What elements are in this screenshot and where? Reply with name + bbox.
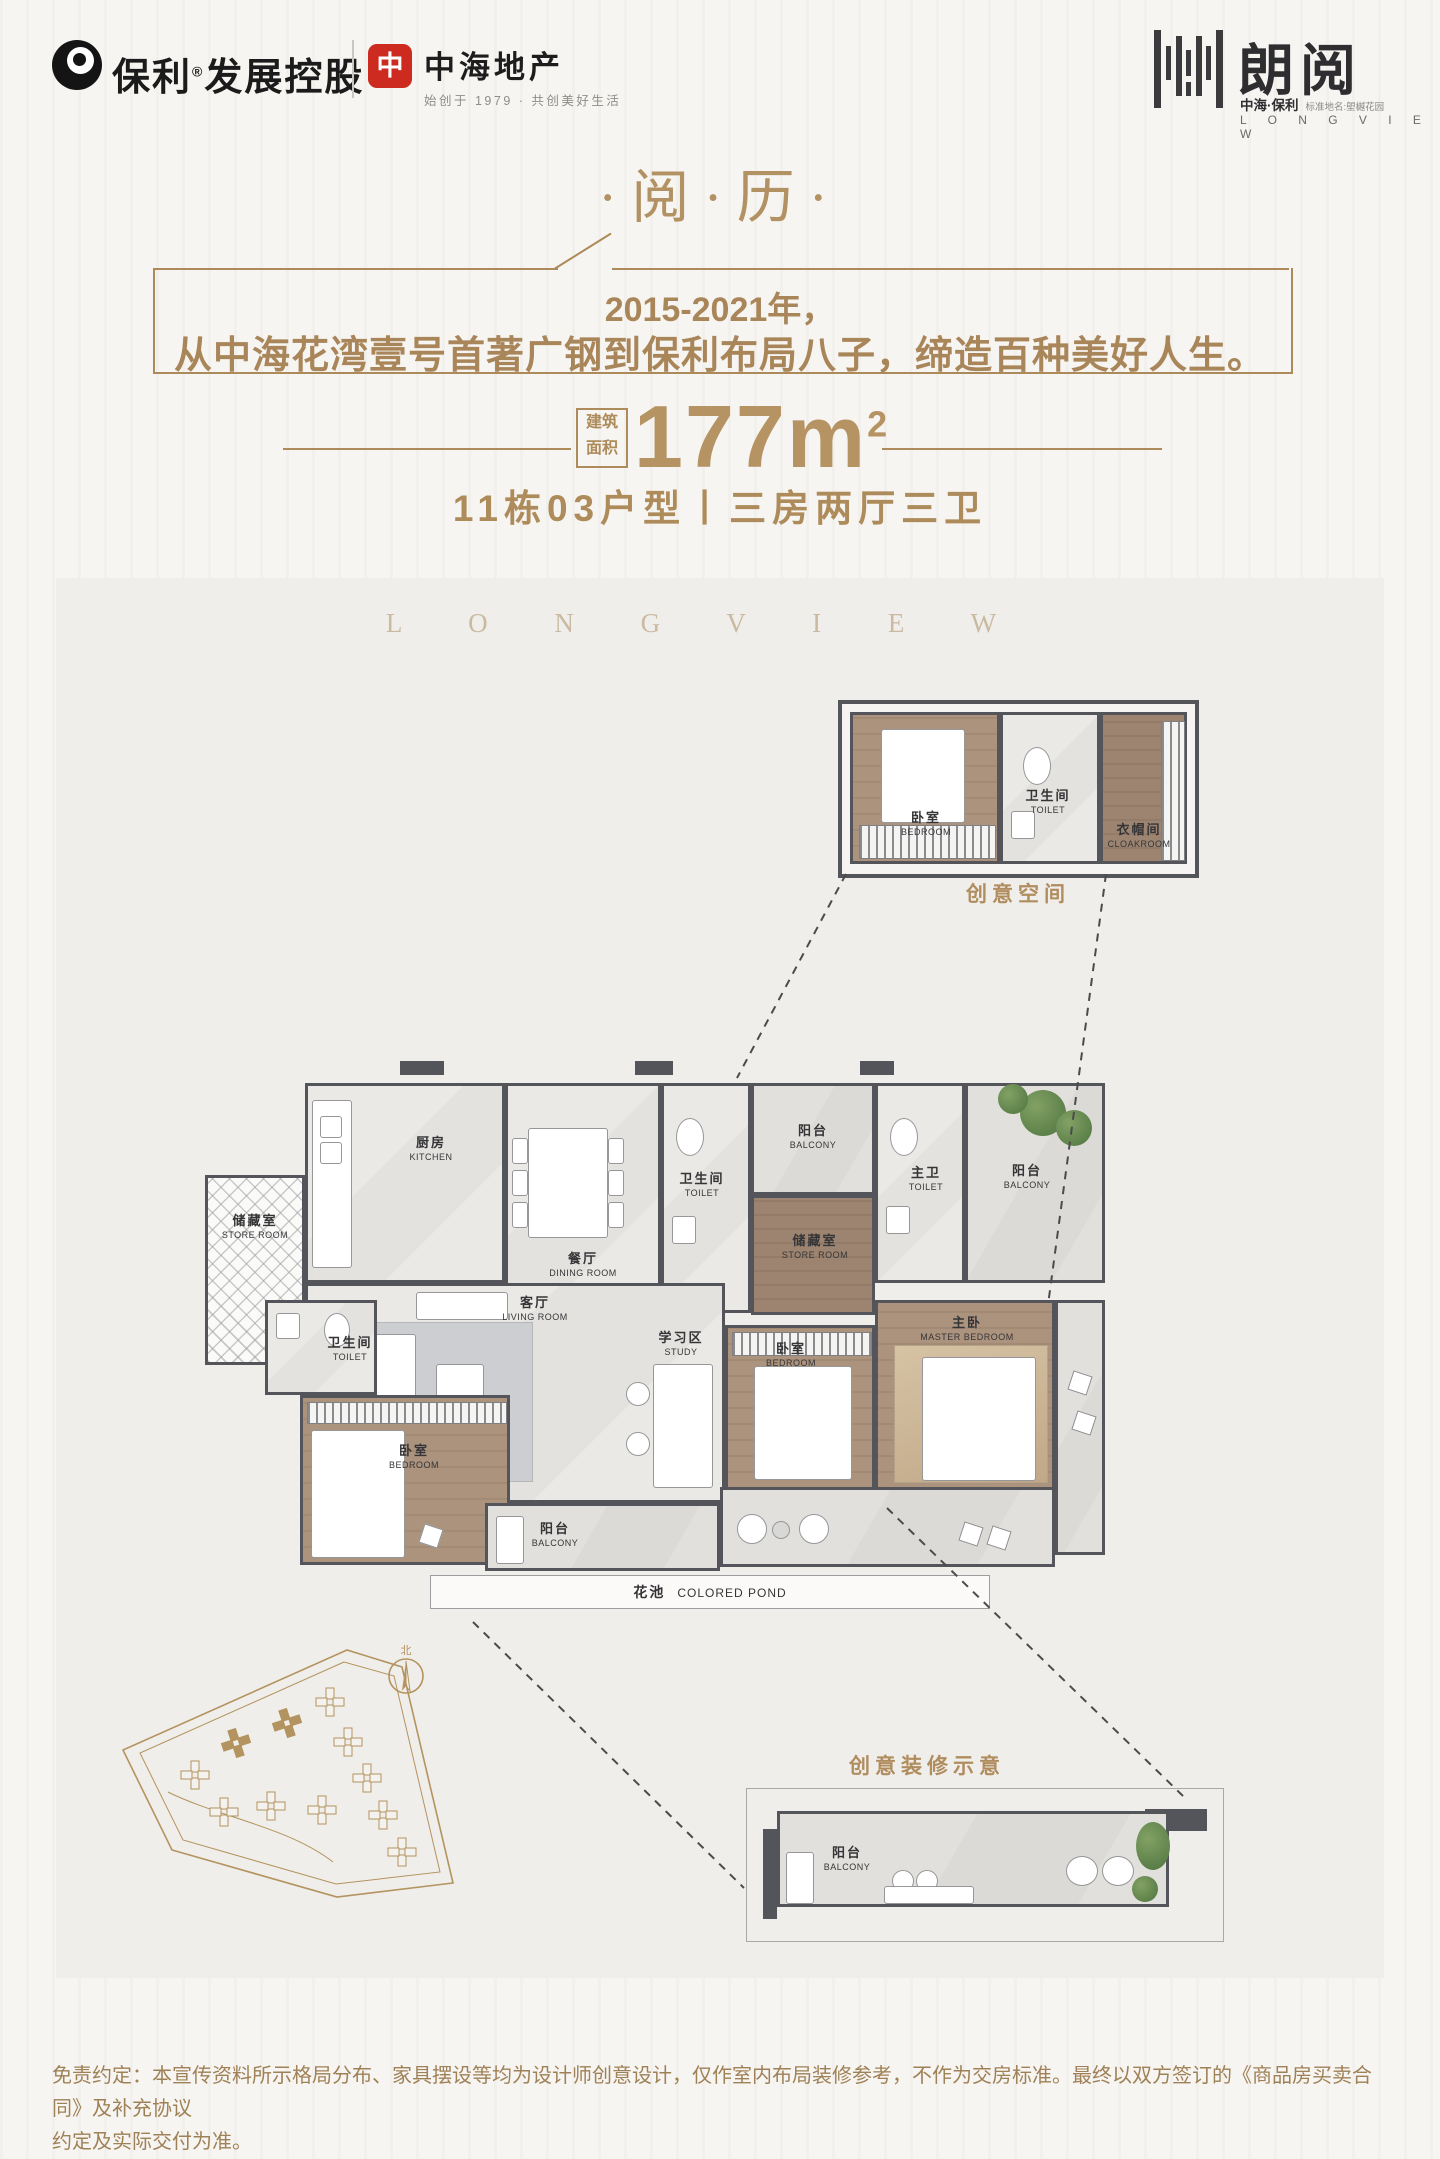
room-master-terrace-side	[1055, 1300, 1105, 1555]
main-floorplan: 储藏室STORE ROOM 厨房KITCHEN 餐厅DINING ROOM 卫生…	[205, 1075, 1105, 1620]
room-label: 花池COLORED POND	[633, 1582, 786, 1602]
room-bedroom-left	[300, 1395, 510, 1565]
toilet-icon	[1023, 747, 1051, 785]
creative-space-inset: 卧室 BEDROOM 卫生间 TOILET 衣帽间 CLOAKROOM	[838, 700, 1199, 878]
sink-icon	[886, 1206, 910, 1234]
plant-icon	[998, 1084, 1028, 1114]
study-desk-icon	[653, 1364, 713, 1488]
room-label: 厨房KITCHEN	[409, 1132, 452, 1162]
area-stamp-bottom: 面积	[586, 440, 618, 457]
room-label: 阳台BALCONY	[532, 1518, 579, 1548]
longview-logo-icon	[1152, 28, 1228, 110]
vent-stub	[400, 1061, 444, 1075]
bed-icon	[922, 1357, 1036, 1481]
room-toilet-mid	[661, 1083, 751, 1313]
room-label: 储藏室STORE ROOM	[782, 1230, 848, 1260]
floor-pillow	[958, 1521, 983, 1546]
hero-slash-decoration	[554, 233, 611, 270]
poly-brand-text: 保利®发展控股	[112, 46, 364, 101]
room-label: 卫生间TOILET	[327, 1332, 372, 1362]
poly-brand-name: 保利	[112, 57, 192, 99]
room-label: 卧室BEDROOM	[389, 1440, 439, 1470]
hero-line-slogan: 从中海花湾壹号首著广钢到保利布局八子，缔造百种美好人生。	[0, 324, 1440, 379]
stove-icon	[320, 1116, 342, 1138]
registered-mark: ®	[192, 63, 204, 79]
disclaimer-line1: 免责约定：本宣传资料所示格局分布、家具摆设等均为设计师创意设计，仅作室内布局装修…	[52, 2060, 1392, 2126]
wardrobe-icon	[307, 1402, 507, 1424]
plant-icon	[1132, 1876, 1158, 1902]
chair-icon	[512, 1202, 528, 1228]
inset-bottom-caption: 创意装修示意	[849, 1750, 1005, 1780]
toilet-icon	[676, 1118, 704, 1156]
page-title: ·阅·历·	[0, 150, 1440, 234]
zhonghai-logo-icon: 中	[368, 44, 412, 88]
chair-icon	[608, 1170, 624, 1196]
zhonghai-brand-name: 中海地产	[424, 42, 564, 87]
dining-table-icon	[528, 1128, 608, 1238]
room-label: 主卧MASTER BEDROOM	[920, 1312, 1014, 1342]
room-label: 卧室 BEDROOM	[901, 807, 951, 837]
room-terrace	[720, 1487, 1055, 1567]
poly-brand-suffix: 发展控股	[204, 57, 364, 99]
chair-icon	[608, 1202, 624, 1228]
floor-pillow	[1067, 1370, 1092, 1395]
longview-watermark: L O N G V I E W	[56, 608, 1356, 639]
zhonghai-tagline: 始创于 1979 · 共创美好生活	[424, 90, 621, 109]
unit-type-line: 11栋03户型丨三房两厅三卫	[0, 478, 1440, 532]
room-label: 衣帽间 CLOAKROOM	[1107, 819, 1170, 849]
area-rule-right	[882, 448, 1162, 450]
sink-icon	[1011, 811, 1035, 839]
poly-logo-dot	[73, 53, 86, 66]
room-label: 阳台 BALCONY	[824, 1842, 871, 1872]
plant-icon	[1056, 1110, 1092, 1146]
chair-icon	[512, 1138, 528, 1164]
disclaimer: 免责约定：本宣传资料所示格局分布、家具摆设等均为设计师创意设计，仅作室内布局装修…	[52, 2060, 1392, 2159]
lounge-chair-icon	[799, 1514, 829, 1544]
cabinet-icon	[786, 1852, 814, 1904]
room-label: 储藏室STORE ROOM	[222, 1210, 288, 1240]
inset-top-caption: 创意空间	[966, 878, 1070, 908]
room-label: 学习区STUDY	[658, 1327, 703, 1357]
disclaimer-line2: 约定及实际交付为准。	[52, 2126, 1392, 2159]
longview-subbrand: 中海·保利	[1240, 98, 1299, 113]
room-label: 主卫TOILET	[909, 1162, 943, 1192]
toilet-icon	[890, 1118, 918, 1156]
floor-pillow	[1071, 1410, 1096, 1435]
room-balcony-bottom	[485, 1503, 720, 1571]
bench-icon	[884, 1886, 974, 1904]
floor-pillow	[418, 1523, 443, 1548]
sink-icon	[276, 1313, 300, 1339]
area-number: 177m	[634, 387, 867, 486]
plant-icon	[1136, 1822, 1170, 1870]
area-value: 177m2	[634, 386, 889, 488]
area-superscript: 2	[867, 404, 889, 445]
creative-decoration-inset: 阳台 BALCONY	[746, 1788, 1224, 1942]
room-dining	[505, 1083, 661, 1313]
longview-subrow: 中海·保利标准地名:塱樾花园	[1240, 94, 1384, 115]
poly-logo-icon	[52, 40, 102, 90]
room-label: 卫生间TOILET	[679, 1168, 724, 1198]
stove-icon	[320, 1142, 342, 1164]
chair-icon	[608, 1138, 624, 1164]
room-label: 餐厅DINING ROOM	[549, 1248, 617, 1278]
lounge-chair-icon	[1066, 1856, 1098, 1886]
area-stamp-top: 建筑	[586, 414, 618, 431]
longview-latin-name: L O N G V I E W	[1240, 113, 1440, 141]
side-table-icon	[772, 1521, 790, 1539]
inset-bedroom	[850, 712, 1000, 864]
vent-stub	[635, 1061, 673, 1075]
chair-icon	[626, 1382, 650, 1406]
hero-box-topline-right	[612, 268, 1289, 270]
sink-icon	[672, 1216, 696, 1244]
poster-page: 保利®发展控股 中 中海地产 始创于 1979 · 共创美好生活 朗阅 中海·保…	[0, 0, 1440, 2159]
cabinet-icon	[496, 1516, 524, 1564]
tv-console-icon	[416, 1292, 508, 1320]
room-kitchen	[305, 1083, 505, 1283]
area-rule-left	[283, 448, 571, 450]
room-label: 卫生间 TOILET	[1025, 785, 1070, 815]
bed-icon	[754, 1366, 852, 1480]
floor-pillow	[986, 1525, 1011, 1550]
room-label: 卧室BEDROOM	[766, 1338, 816, 1368]
room-label: 阳台BALCONY	[790, 1120, 837, 1150]
longview-standard-name: 标准地名:塱樾花园	[1306, 102, 1385, 113]
header-divider	[352, 40, 354, 98]
vent-stub	[860, 1061, 894, 1075]
room-label: 客厅LIVING ROOM	[502, 1292, 568, 1322]
hero-box-topline-left	[153, 268, 558, 270]
room-label: 阳台BALCONY	[1004, 1160, 1051, 1190]
zhonghai-logo-glyph: 中	[377, 51, 404, 81]
wall-segment	[763, 1829, 777, 1919]
chair-icon	[626, 1432, 650, 1456]
lounge-chair-icon	[1102, 1856, 1134, 1886]
chair-icon	[512, 1170, 528, 1196]
lounge-chair-icon	[737, 1514, 767, 1544]
area-stamp: 建筑 面积	[576, 408, 628, 468]
